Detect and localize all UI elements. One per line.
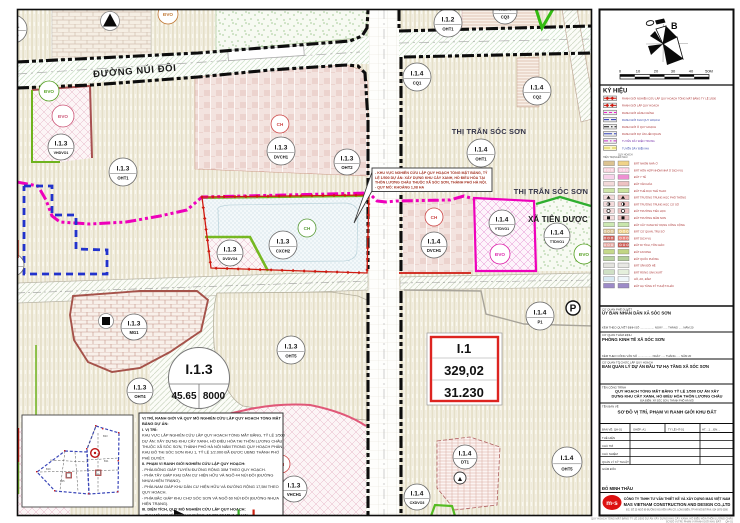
svg-text:▲: ▲ <box>457 476 464 483</box>
svg-text:SƠ ĐỒ VỊ TRÍ, PHẠM VI RANH GIỚ: SƠ ĐỒ VỊ TRÍ, PHẠM VI RANH GIỚI KHU ĐẤT <box>618 408 717 415</box>
svg-text:- PHÍA ĐÔNG GIÁP TUYẾN ĐƯỜNG R: - PHÍA ĐÔNG GIÁP TUYẾN ĐƯỜNG RỘNG 30M TH… <box>142 467 266 472</box>
svg-text:THUỘC XÃ SÓC SƠN, THÀNH PHỐ HÀ: THUỘC XÃ SÓC SƠN, THÀNH PHỐ HÀ NỘI NẰM T… <box>142 444 282 449</box>
svg-text:KÝ HIỆU: KÝ HIỆU <box>603 87 627 95</box>
svg-text:I.1.3: I.1.3 <box>288 482 301 489</box>
svg-text:I.1.4: I.1.4 <box>411 70 424 77</box>
svg-text:BAN QUẢN LÝ DỰ ÁN ĐẦU TƯ HẠ TẦ: BAN QUẢN LÝ DỰ ÁN ĐẦU TƯ HẠ TẦNG XÃ SÓC … <box>602 364 709 369</box>
svg-text:I.1: I.1 <box>457 341 471 356</box>
svg-text:OHT4: OHT4 <box>134 394 146 399</box>
svg-text:CQ1: CQ1 <box>413 81 422 86</box>
svg-text:P1: P1 <box>537 320 543 325</box>
svg-text:31.230: 31.230 <box>444 385 484 400</box>
svg-text:ĐẤT AN NINH: ĐẤT AN NINH <box>634 250 651 254</box>
svg-text:CQ2: CQ2 <box>533 95 542 100</box>
svg-text:B05: B05 <box>60 479 65 483</box>
svg-text:ĐỖ MINH THẦU: ĐỖ MINH THẦU <box>602 486 633 491</box>
svg-text:10: 10 <box>636 69 641 74</box>
svg-text:I. VỊ TRÍ:: I. VỊ TRÍ: <box>142 427 158 432</box>
svg-text:I.1.3: I.1.3 <box>55 140 68 147</box>
svg-text:GHÉP: A1: GHÉP: A1 <box>633 427 646 432</box>
svg-text:KHU ĐÔ THỊ SÓC SƠN KHU 1, TỶ L: KHU ĐÔ THỊ SÓC SƠN KHU 1, TỶ LỆ 1/2.000 … <box>142 450 279 455</box>
svg-text:THỊ TRẤN SÓC SƠN: THỊ TRẤN SÓC SƠN <box>514 186 588 196</box>
svg-text:DT1: DT1 <box>461 460 470 465</box>
svg-text:DVCH1: DVCH1 <box>427 248 442 253</box>
svg-text:I.1.3: I.1.3 <box>341 155 354 162</box>
svg-text:PHÒNG KINH TẾ XÃ SÓC SƠN: PHÒNG KINH TẾ XÃ SÓC SƠN <box>602 337 665 342</box>
svg-text:OHT1: OHT1 <box>117 176 129 181</box>
svg-text:CÔNG TY TNHH TƯ VẤN THIẾT KẾ V: CÔNG TY TNHH TƯ VẤN THIẾT KẾ VÀ XÂY DỰNG… <box>624 496 731 501</box>
svg-text:- QUY MÔ: KHOẢNG 1,08 HA: - QUY MÔ: KHOẢNG 1,08 HA <box>375 184 424 189</box>
svg-text:I.1.3: I.1.3 <box>128 320 141 327</box>
svg-text:CQ3: CQ3 <box>501 15 510 20</box>
svg-text:QUY HOẠCH.: QUY HOẠCH. <box>142 490 167 495</box>
svg-text:BẢN VẼ: QH-01: BẢN VẼ: QH-01 <box>602 427 622 432</box>
svg-text:KHU VỰC LẬP NGHIÊN CỨU LẬP QUY: KHU VỰC LẬP NGHIÊN CỨU LẬP QUY HOẠCH TỔN… <box>142 433 286 438</box>
svg-text:OHT2: OHT2 <box>341 165 353 170</box>
svg-text:ĐVO: ĐVO <box>579 252 589 257</box>
svg-text:HT....1....ĐN....: HT....1....ĐN.... <box>702 428 721 432</box>
svg-text:329,02: 329,02 <box>444 363 484 378</box>
svg-text:ỦY BAN NHÂN DÂN XÃ SÓC SƠN: ỦY BAN NHÂN DÂN XÃ SÓC SƠN <box>602 311 671 316</box>
svg-text:I.1.3: I.1.3 <box>285 343 298 350</box>
svg-text:ĐẤT DỊCH VỤ: ĐẤT DỊCH VỤ <box>634 236 651 240</box>
svg-text:BẰNG DỰ ÁN:: BẰNG DỰ ÁN: <box>142 421 169 426</box>
svg-text:OHT5: OHT5 <box>561 466 573 471</box>
svg-text:I.1.3: I.1.3 <box>185 361 212 377</box>
svg-text:VỊ TRÍ, RANH GIỚI VÀ QUY MÔ NG: VỊ TRÍ, RANH GIỚI VÀ QUY MÔ NGHIÊN CỨU L… <box>142 416 281 421</box>
svg-text:I.1.3: I.1.3 <box>117 165 130 172</box>
svg-text:B23: B23 <box>103 434 108 438</box>
svg-text:MG1: MG1 <box>129 330 139 335</box>
svg-text:VHCH1: VHCH1 <box>287 492 302 497</box>
svg-text:CHỦ NHIỆM: CHỦ NHIỆM <box>602 451 619 456</box>
svg-text:DVCH1: DVCH1 <box>274 155 289 160</box>
svg-text:I.1.4: I.1.4 <box>496 216 509 223</box>
svg-text:45.65: 45.65 <box>171 391 196 402</box>
svg-text:I.1.4: I.1.4 <box>531 84 544 91</box>
svg-text:THỊ TRẤN SÓC SƠN: THỊ TRẤN SÓC SƠN <box>452 126 526 136</box>
svg-text:ĐVO: ĐVO <box>44 89 54 94</box>
svg-text:50M: 50M <box>705 69 713 74</box>
svg-text:I.1.3: I.1.3 <box>275 144 288 151</box>
svg-text:HIỆN TRẠNG).: HIỆN TRẠNG). <box>142 501 168 506</box>
svg-text:KÈM THEO QUYẾT ĐỊNH SỐ .......: KÈM THEO QUYẾT ĐỊNH SỐ .................… <box>602 325 694 330</box>
svg-text:I.1.3: I.1.3 <box>277 238 290 245</box>
svg-text:I.1.4: I.1.4 <box>534 309 547 316</box>
svg-text:OHT1: OHT1 <box>475 157 487 162</box>
svg-text:THỂ HIỆN: THỂ HIỆN <box>602 435 615 440</box>
svg-text:DỰ ÁN: XÂY DỰNG KHU CÂY XANH,: DỰ ÁN: XÂY DỰNG KHU CÂY XANH, HỒ ĐIỀU HÒ… <box>142 438 283 443</box>
svg-text:TTDVO1: TTDVO1 <box>550 240 564 244</box>
svg-text:B: B <box>671 21 678 31</box>
svg-text:8000: 8000 <box>203 391 226 402</box>
svg-text:- PHÍA BẮC GIÁP KHU CHỢ SÓC SƠ: - PHÍA BẮC GIÁP KHU CHỢ SÓC SƠN VÀ NGÕ 6… <box>142 495 279 500</box>
svg-text:I.1.3: I.1.3 <box>224 246 237 253</box>
svg-text:OHT1: OHT1 <box>442 27 454 32</box>
svg-text:B11: B11 <box>104 459 109 463</box>
svg-text:- PHÍA NAM GIÁP KHU DÂN CƯ HIỆ: - PHÍA NAM GIÁP KHU DÂN CƯ HIỆN HỮU VÀ Đ… <box>142 484 279 489</box>
svg-text:NHỰA HIỆN TRẠNG).: NHỰA HIỆN TRẠNG). <box>142 478 181 483</box>
svg-text:ĐVO: ĐVO <box>163 12 173 17</box>
svg-text:- KHU VỰC NGHIÊN CỨU LẬP QUY H: - KHU VỰC NGHIÊN CỨU LẬP QUY HOẠCH TỔNG … <box>375 170 488 175</box>
svg-text:KÈM THEO CÔNG VĂN SỐ .........: KÈM THEO CÔNG VĂN SỐ .................. … <box>602 353 692 358</box>
svg-text:20: 20 <box>654 69 659 74</box>
svg-text:- PHÍA TÂY GIÁP KHU DÂN CƯ HIỆ: - PHÍA TÂY GIÁP KHU DÂN CƯ HIỆN HỮU VÀ N… <box>142 473 273 478</box>
svg-text:TỶ LỆ HT-01: TỶ LỆ HT-01 <box>668 427 685 432</box>
svg-text:OHT5: OHT5 <box>285 354 297 359</box>
svg-text:ĐVO: ĐVO <box>495 252 505 257</box>
svg-text:CXDVO3: CXDVO3 <box>410 501 425 505</box>
svg-text:I.1.2: I.1.2 <box>442 16 455 23</box>
svg-text:QUẢN LÝ KỸ THUẬT: QUẢN LÝ KỸ THUẬT <box>602 459 629 464</box>
svg-text:THÔN LƯƠNG CHÂU THUỘC XÃ SÓC S: THÔN LƯƠNG CHÂU THUỘC XÃ SÓC SƠN, THÀNH … <box>375 180 487 185</box>
svg-text:I.1.4: I.1.4 <box>551 229 564 236</box>
svg-text:CH: CH <box>431 215 438 220</box>
svg-text:CXCH2: CXCH2 <box>276 249 291 254</box>
svg-text:CH: CH <box>277 122 284 127</box>
svg-text:III. DIỆN TÍCH, QUY MÔ NGHIÊN: III. DIỆN TÍCH, QUY MÔ NGHIÊN CỨU LẬP QU… <box>142 507 246 512</box>
svg-text:I.1.4: I.1.4 <box>459 451 472 458</box>
svg-text:m-s: m-s <box>606 500 618 507</box>
svg-text:I.1.4: I.1.4 <box>475 146 488 153</box>
svg-text:ĐVO: ĐVO <box>58 114 68 119</box>
svg-text:I.1.3: I.1.3 <box>134 384 147 391</box>
svg-text:I.1.4: I.1.4 <box>428 238 441 245</box>
svg-text:ĐẤT ĐAI: ĐẤT ĐAI <box>618 156 628 159</box>
svg-text:ĐC: SỐ 25 NGÕ 89 ĐƯỜNG NGUYỄN: ĐC: SỐ 25 NGÕ 89 ĐƯỜNG NGUYỄN VĂN CỪ, LO… <box>626 509 728 512</box>
svg-text:ĐỊA ĐIỂM: XÃ SÓC SƠN, THÀNH P: ĐỊA ĐIỂM: XÃ SÓC SƠN, THÀNH PHỐ HÀ NỘI <box>640 399 694 402</box>
svg-text:TÊN BẢN VẼ: TÊN BẢN VẼ <box>602 403 619 408</box>
svg-text:DỰNG KHU CÂY XANH, HỒ ĐIỀU HÒA: DỰNG KHU CÂY XANH, HỒ ĐIỀU HÒA THÔN LƯƠN… <box>612 394 723 399</box>
svg-text:YTDVO1: YTDVO1 <box>495 227 509 231</box>
svg-text:30: 30 <box>671 69 676 74</box>
svg-text:PHÊ DUYỆT.: PHÊ DUYỆT. <box>142 455 165 460</box>
svg-text:I.1.4: I.1.4 <box>411 490 424 497</box>
svg-text:II. PHẠM VI RANH GIỚI NGHIÊN C: II. PHẠM VI RANH GIỚI NGHIÊN CỨU LẬP QUY… <box>142 461 245 466</box>
svg-text:VHDVO1: VHDVO1 <box>54 151 69 155</box>
svg-text:HIỆN TRẠNG: HIỆN TRẠNG <box>603 156 618 159</box>
svg-text:LỆ 1/500 DỰ ÁN: XÂY DỰNG KHU C: LỆ 1/500 DỰ ÁN: XÂY DỰNG KHU CÂY XANH, H… <box>375 175 485 180</box>
svg-text:40: 40 <box>689 69 694 74</box>
svg-text:CH: CH <box>304 226 311 231</box>
svg-text:P: P <box>570 304 577 315</box>
svg-text:I.1.4: I.1.4 <box>561 455 574 462</box>
svg-text:CHỦ TRÌ: CHỦ TRÌ <box>602 443 614 448</box>
svg-text:GIÁM ĐỐC: GIÁM ĐỐC <box>602 466 616 471</box>
svg-text:MAS VIETNAM CONSTRUCTION AND D: MAS VIETNAM CONSTRUCTION AND DESIGN CO.,… <box>624 502 731 507</box>
svg-text:B19: B19 <box>46 467 51 471</box>
svg-text:DVDVO4: DVDVO4 <box>223 257 238 261</box>
